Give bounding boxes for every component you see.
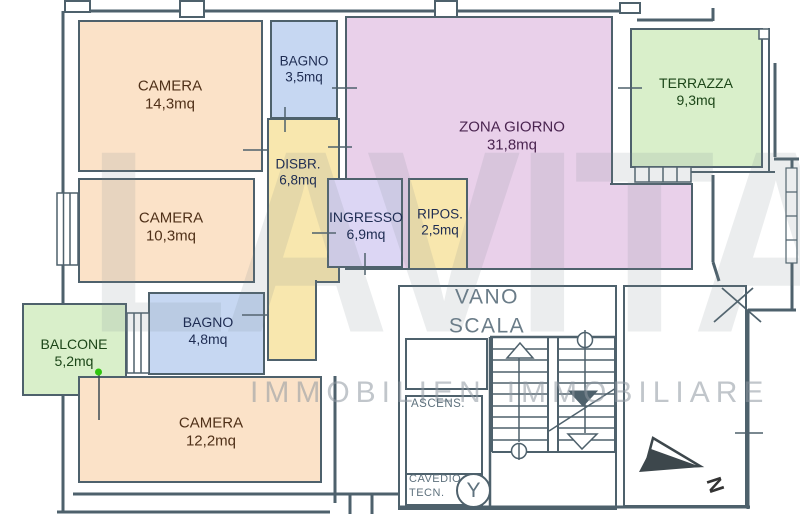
label-camera-122: CAMERA12,2mq — [179, 415, 243, 452]
label-bagno-48: BAGNO4,8mq — [183, 314, 234, 348]
window-under-terrazza — [635, 167, 691, 182]
label-camera-14: CAMERA14,3mq — [138, 78, 202, 115]
floor-plan: N LAVITA IMMOBILIEN IMMOBILIARE CAMERA14… — [0, 0, 800, 516]
compass-north-label: N — [702, 474, 729, 496]
label-ascensore: ASCENS. — [411, 398, 465, 410]
window-right — [786, 168, 797, 263]
label-vano-scala: VANOSCALA — [449, 283, 525, 342]
window-balcone-door — [127, 313, 149, 373]
stair-walk-lines — [519, 330, 616, 442]
stairs — [490, 330, 617, 507]
entry-door-swing — [714, 288, 761, 322]
window-left — [57, 193, 78, 265]
label-terrazza: TERRAZZA9,3mq — [659, 75, 733, 109]
label-ripos: RIPOS.2,5mq — [417, 207, 463, 240]
label-disbr: DISBR.6,8mq — [275, 157, 320, 190]
label-cavedio: CAVEDIO TECN. — [409, 472, 461, 500]
label-balcone: BALCONE5,2mq — [41, 336, 108, 370]
compass-icon: N — [639, 438, 728, 496]
pilasters — [65, 1, 640, 17]
stair-arrow-up — [507, 343, 533, 358]
label-ingresso: INGRESSO6,9mq — [329, 209, 403, 243]
label-bagno-35: BAGNO3,5mq — [280, 54, 329, 87]
stair-arrow-down — [568, 434, 597, 449]
label-camera-103: CAMERA10,3mq — [139, 210, 203, 247]
shaft-symbol: Y — [456, 473, 491, 508]
label-zona-giorno: ZONA GIORNO31,8mq — [459, 119, 565, 156]
terrazza-corner-post — [759, 29, 769, 39]
